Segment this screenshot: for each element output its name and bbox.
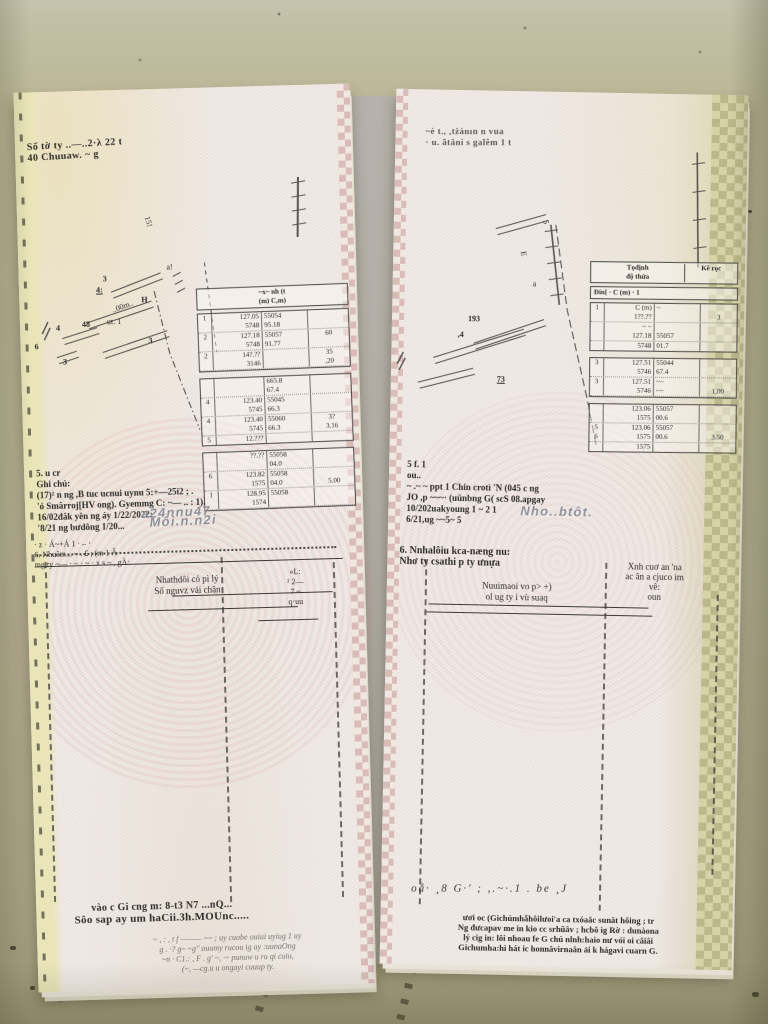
coord-cell: 66.3	[264, 403, 310, 414]
coordinate-table-right: Tọđịnhđộ thửa Kề rọc Đin[ · C (m) · 1 1C…	[588, 261, 738, 460]
coord-cell	[308, 337, 349, 348]
coord-cell	[201, 388, 214, 397]
coord-cell	[590, 367, 603, 376]
sketch-label: H	[141, 295, 147, 304]
coord-cell: 5	[203, 436, 216, 445]
coord-cell	[699, 405, 736, 414]
coord-cell	[699, 424, 736, 433]
coord-cell	[654, 313, 700, 322]
coord-cell	[310, 402, 351, 413]
coord-cell	[265, 432, 311, 443]
left-document: Số tờ ty ..―..2·λ 22 t 40 Chuuaw. ~ g	[14, 83, 375, 992]
watermark-line: Nho..btôt.	[520, 505, 593, 518]
sketch-label: 4	[56, 324, 60, 333]
signature-rule	[429, 603, 649, 608]
watermark-line: Môi.n.n2i	[149, 514, 217, 529]
signature-fragments-right: «L:² 2—7 ~q·uu	[255, 566, 336, 608]
sketch-label: 3	[63, 357, 67, 366]
coord-cell	[590, 404, 603, 413]
coord-cell: 5748	[603, 341, 653, 351]
signature-rule	[426, 611, 652, 616]
watermark-right: Nho..btôt.	[520, 505, 593, 518]
sketch-label: 48	[82, 320, 90, 329]
right-document-content: ~è t., ,tżánın n vua · u. ãtăni s galêm …	[380, 89, 749, 971]
sketch-label: 3	[103, 274, 107, 283]
floor-fleck	[748, 210, 752, 213]
coord-cell	[199, 342, 212, 351]
sketch-label: 193	[468, 314, 480, 323]
coord-cell	[700, 323, 737, 332]
coord-cell	[201, 407, 214, 416]
fold-line	[419, 559, 428, 904]
coord-table-group: 1C (m)~1??.??3~ ~127.1855057574801.7	[589, 302, 738, 353]
coord-table-group: 665.867.44123.4055045574566.34123.405506…	[199, 373, 353, 447]
coord-cell: 3	[590, 377, 603, 386]
header-right: Kề rọc	[684, 264, 737, 283]
sketch-label: 4:	[96, 285, 103, 294]
coord-cell: 3146	[213, 359, 263, 370]
fineprint-notes: ươi oc (Gichúmhẫhôilưoi'a ca txóaăc sunâ…	[392, 911, 725, 957]
coord-cell: 1575	[603, 413, 653, 423]
coord-cell: 3	[700, 313, 737, 322]
coord-cell	[590, 331, 603, 340]
coord-cell	[698, 443, 735, 452]
fineprint-notes: ~ , : , t f ——— ~~ ; uy cuobe ouiui uyiu…	[92, 929, 363, 977]
coord-table-group: 123.0655057157500.65123.06550576157500.6…	[588, 403, 737, 454]
coord-cell	[699, 332, 736, 341]
sketch-label: ,4	[458, 330, 464, 339]
header-left: Tọđịnhđộ thửa	[591, 263, 684, 282]
coord-cell: 3	[590, 358, 603, 367]
coord-cell: 01.7	[653, 342, 699, 351]
signature-rule	[258, 619, 318, 622]
notes-section: 5 f. 1ou..~ .~ ~ ppt 1 Chin crotì 'N (04…	[406, 459, 727, 531]
sketch-label: a	[533, 279, 537, 288]
coord-cell	[699, 342, 736, 351]
coord-cell	[590, 341, 603, 350]
coord-row: 574801.7	[590, 341, 736, 352]
coord-table-group: 1127.0555054574895.182127.18550576057489…	[197, 308, 351, 373]
sketch-label: 3	[148, 336, 152, 345]
sketch-label: 6	[34, 342, 38, 351]
coord-table-header: ~x~ nh (t(m) C,m)	[196, 283, 349, 311]
photo-background: Số tờ ty ..―..2·λ 22 t 40 Chuuaw. ~ g	[0, 0, 768, 1024]
coord-table-group: 3127.5155044574667.43127.51~~5746~~1,00	[589, 357, 737, 399]
coord-cell: ~~	[653, 378, 699, 387]
coord-cell	[590, 386, 603, 395]
coord-cell: ~~	[653, 387, 699, 396]
right-document: ~è t., ,tżánın n vua · u. ãtăni s galêm …	[380, 89, 749, 971]
text-line: Đin[ · C (m) · 1	[594, 288, 737, 298]
coord-cell	[654, 323, 700, 332]
coord-cell	[699, 378, 736, 387]
coord-table-subheader: Đin[ · C (m) · 1	[590, 286, 738, 301]
coord-cell	[700, 304, 737, 313]
coord-cell: 3.50	[698, 433, 735, 442]
coord-cell: 55057	[653, 424, 699, 433]
coord-cell: 1,00	[699, 387, 736, 396]
sketch-label: a!	[166, 262, 172, 271]
fold-line	[333, 562, 344, 897]
coord-cell: 00.6	[653, 414, 699, 423]
coord-cell: 66.3	[265, 422, 311, 433]
coord-cell: 55044	[653, 359, 699, 368]
coord-cell: 1	[591, 303, 604, 312]
text-line: oun	[597, 591, 712, 603]
coord-cell	[263, 357, 309, 368]
coord-table-groups: 1C (m)~1??.??3~ ~127.1855057574801.73127…	[588, 302, 738, 454]
coord-row: 1575	[589, 442, 735, 453]
signature-title-left: Nuuimaoi vo p> +)ol ug ty i vù suaq	[427, 579, 607, 604]
text-line: ol ug ty i vù suaq	[427, 590, 607, 604]
coord-cell: 5746	[603, 367, 653, 377]
coord-cell: 1575	[602, 442, 652, 452]
coord-cell: 12.???	[216, 434, 266, 445]
coord-cell: 95.18	[261, 319, 307, 330]
coord-cell: 5746	[603, 386, 653, 396]
coord-cell	[591, 322, 604, 331]
coord-cell	[589, 442, 602, 451]
coord-cell: ,20	[309, 356, 350, 367]
handwritten-note: oẵ· ¸8 G·' ; ,.~·.1 . be ¸J	[411, 883, 568, 895]
coord-cell: 91.77	[262, 338, 308, 349]
coord-cell: 127.18	[603, 331, 653, 341]
coord-cell	[591, 312, 604, 321]
coord-row: 5746~~1,00	[590, 386, 736, 398]
signature-fragments-right: Xnh cuơ an 'naac ân a cjuco imvê:oun	[597, 561, 713, 603]
coord-cell: 67.4	[264, 384, 310, 395]
coord-cell	[699, 359, 736, 368]
coord-cell	[202, 426, 215, 435]
watermark-left: a24nnu47 Môi.n.n2i	[141, 505, 217, 529]
coord-cell	[200, 361, 213, 370]
coord-cell	[590, 413, 603, 422]
coord-cell: 00.6	[652, 433, 698, 442]
coord-cell: 1??.??	[604, 312, 654, 322]
coord-cell: 1575	[602, 432, 652, 442]
coord-cell	[652, 443, 698, 452]
coord-cell	[699, 368, 736, 377]
coord-cell: 5	[590, 423, 603, 432]
floor-fleck	[10, 946, 16, 950]
coord-cell	[307, 318, 348, 329]
floor-fleck	[30, 986, 35, 990]
floor-fleck	[752, 992, 759, 997]
coord-cell	[198, 323, 211, 332]
coord-cell	[699, 414, 736, 423]
sketch-label: ut. 1	[107, 317, 121, 326]
coord-cell: 67.4	[653, 368, 699, 377]
text-line: độ thửa	[591, 272, 684, 282]
coord-cell: 55057	[653, 332, 699, 341]
fold-line	[711, 595, 718, 875]
left-document-content: Số tờ ty ..―..2·λ 22 t 40 Chuuaw. ~ g	[14, 83, 375, 992]
coord-cell: 3.16	[311, 421, 352, 432]
sketch-label: 73	[497, 375, 505, 384]
coord-cell: 6	[589, 432, 602, 441]
coord-table-header: Tọđịnhđộ thửa Kề rọc	[590, 261, 738, 285]
coord-cell	[311, 431, 352, 442]
coord-cell	[310, 383, 351, 394]
coord-cell: 55057	[653, 405, 699, 414]
coord-cell: ~	[654, 304, 700, 313]
fold-line	[45, 562, 56, 902]
